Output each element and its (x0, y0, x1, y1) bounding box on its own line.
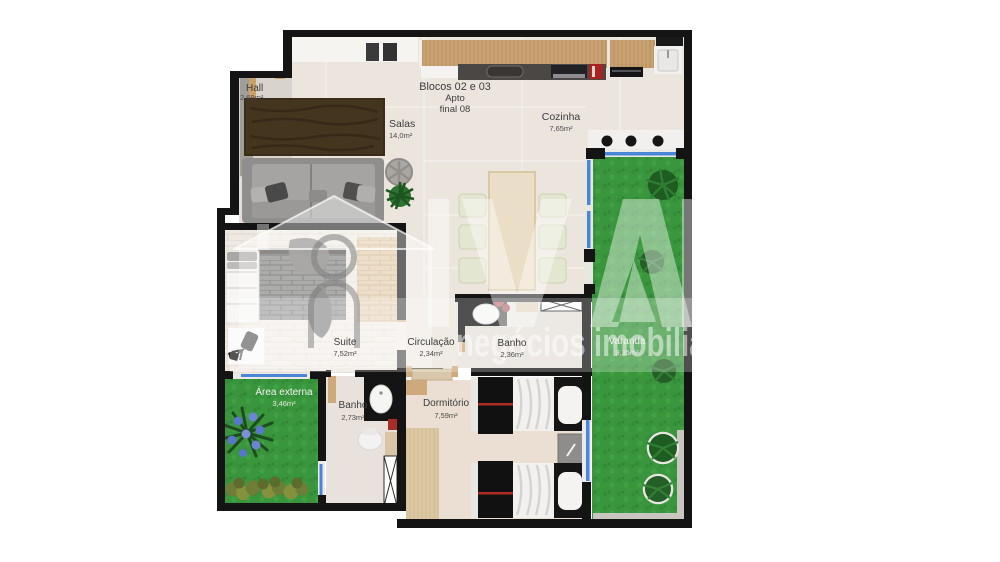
svg-text:Área externa: Área externa (255, 385, 313, 398)
svg-text:negócios imobiliá: negócios imobiliá (456, 321, 706, 365)
svg-text:Suite: Suite (334, 337, 357, 348)
svg-text:3,46m²: 3,46m² (272, 399, 296, 408)
svg-text:Dormitório: Dormitório (423, 398, 470, 409)
svg-text:7,65m²: 7,65m² (549, 124, 573, 133)
svg-text:2,69m²: 2,69m² (240, 93, 264, 102)
svg-text:2,34m²: 2,34m² (419, 349, 443, 358)
svg-text:7,59m²: 7,59m² (434, 411, 458, 420)
svg-text:14,0m²: 14,0m² (389, 131, 413, 140)
svg-text:Varanda: Varanda (608, 336, 646, 347)
svg-text:2,36m²: 2,36m² (500, 350, 524, 359)
svg-text:Cozinha: Cozinha (542, 111, 581, 123)
svg-text:Banho: Banho (498, 338, 527, 349)
svg-text:Salas: Salas (389, 118, 415, 130)
svg-text:Banho: Banho (339, 400, 368, 411)
svg-text:9,35m²: 9,35m² (615, 348, 639, 357)
svg-text:Blocos 02 e 03: Blocos 02 e 03 (419, 81, 490, 93)
svg-text:Apto: Apto (445, 93, 465, 104)
svg-text:Circulação: Circulação (407, 337, 455, 348)
svg-text:final 08: final 08 (440, 104, 471, 115)
svg-text:2,73m²: 2,73m² (341, 413, 365, 422)
svg-text:7,52m²: 7,52m² (333, 349, 357, 358)
